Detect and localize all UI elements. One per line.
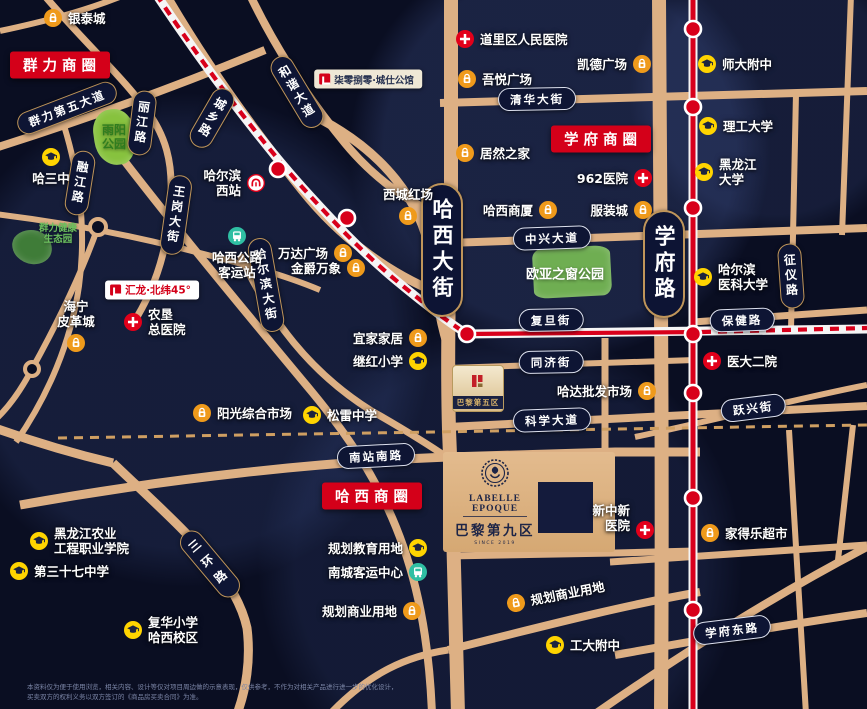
poi-吾悦广场: 吾悦广场 [458,70,476,88]
graduation-cap-icon [30,532,48,550]
street-pill: 中兴大道 [513,225,592,251]
shopping-bag-icon [701,524,719,542]
poi-marker [409,329,427,347]
project-site-block: LABELLE EPOQUE 巴黎第九区 SINCE 2019 [443,452,615,552]
street-pill: 同济街 [519,350,584,374]
street-pill: 南站南路 [336,442,415,469]
poi-道里区人民医院: 道里区人民医院 [456,30,474,48]
poi-marker [703,352,721,370]
poi-规划商业用地: 规划商业用地 [403,602,421,620]
shopping-bag-icon [505,592,526,613]
street-pill: 保健路 [709,307,774,332]
poi-label: 哈达批发市场 [557,384,632,399]
poi-银泰城: 银泰城 [44,9,62,27]
poi-西城红场: 西城红场 [399,207,417,225]
poi-marker [409,352,427,370]
project-since: SINCE 2019 [449,541,541,546]
poi-label: 继红小学 [353,354,403,369]
qilingbaling-text: 柒零捌零·城仕公馆 [334,72,414,86]
poi-家得乐超市: 家得乐超市 [701,524,719,542]
poi-黑龙江农业工程职业学院: 黑龙江农业工程职业学院 [30,532,48,550]
graduation-cap-icon [546,636,564,654]
park-label: 欧亚之窗公园 [526,269,604,284]
hospital-cross-icon [703,352,721,370]
station-dot [459,326,475,342]
poi-居然之家: 居然之家 [456,144,474,162]
poi-label: 家得乐超市 [725,526,788,541]
poi-marker [539,201,557,219]
station-dot [339,210,355,226]
poi-农垦总医院: 农垦总医院 [124,313,142,331]
poi-label: 黑龙江农业工程职业学院 [54,526,129,556]
road [842,0,851,235]
shopping-bag-icon [456,144,474,162]
shopping-bag-icon [67,334,85,352]
real-estate-location-map: LABELLE EPOQUE 巴黎第九区 SINCE 2019 巴黎第五区 柒零… [0,0,867,709]
poi-工大附中: 工大附中 [546,636,564,654]
poi-label: 哈尔滨医科大学 [718,262,768,292]
poi-marker [399,207,417,225]
poi-label: 规划商业用地 [322,604,397,619]
poi-marker [44,9,62,27]
poi-marker [409,563,427,581]
poi-marker [633,55,651,73]
poi-松雷中学: 松雷中学 [303,406,321,424]
huilong-logo-icon [110,285,121,296]
poi-南城客运中心: 南城客运中心 [409,563,427,581]
hospital-cross-icon [124,313,142,331]
poi-label: 复华小学哈西校区 [148,615,198,645]
poi-label: 银泰城 [68,11,106,26]
poi-第三十七中学: 第三十七中学 [10,562,28,580]
huilong-brand-label: 汇龙·北纬45° [105,281,199,300]
shopping-bag-icon [347,259,365,277]
poi-marker [458,70,476,88]
road [789,430,806,709]
poi-label: 黑龙江大学 [719,157,757,187]
poi-marker [67,334,85,352]
poi-宜家家居: 宜家家居 [409,329,427,347]
poi-label: 962医院 [577,171,628,186]
poi-海宁皮革城: 海宁皮革城 [67,334,85,352]
bus-icon [409,563,427,581]
major-street-pill: 学府路 [643,210,685,318]
poi-marker [695,163,713,181]
station-dot [685,326,701,342]
qilingbaling-logo-icon [319,74,330,85]
poi-哈尔滨医科大学: 哈尔滨医科大学 [694,268,712,286]
major-street-pill: 哈西大街 [421,183,463,317]
graduation-cap-icon [409,352,427,370]
poi-继红小学: 继红小学 [409,352,427,370]
street-pill: 复旦街 [519,308,584,332]
poi-marker [247,174,265,192]
poi-黑龙江大学: 黑龙江大学 [695,163,713,181]
poi-哈尔滨西站: 哈尔滨西站 [247,174,265,192]
poi-金爵万象: 金爵万象 [347,259,365,277]
poi-962医院: 962医院 [634,169,652,187]
project-emblem-icon [480,458,510,488]
graduation-cap-icon [409,539,427,557]
station-dot [685,200,701,216]
shopping-bag-icon [634,201,652,219]
paris5-emblem-icon [453,366,503,396]
poi-marker [638,382,656,400]
poi-label: 哈西公路客运站 [212,250,262,280]
poi-label: 凯德广场 [577,57,627,72]
poi-marker [124,621,142,639]
poi-marker [546,636,564,654]
poi-label: 理工大学 [723,119,773,134]
paris-5th-district-logo: 巴黎第五区 [452,365,504,412]
poi-marker [634,201,652,219]
poi-label: 宜家家居 [353,331,403,346]
poi-marker [636,521,654,539]
poi-label: 松雷中学 [327,408,377,423]
poi-理工大学: 理工大学 [699,117,717,135]
poi-规划教育用地: 规划教育用地 [409,539,427,557]
railway-line [467,332,702,334]
station-dot [270,161,286,177]
poi-label: 阳光综合市场 [217,406,292,421]
metro-logo-icon [247,174,265,192]
poi-哈西公路客运站: 哈西公路客运站 [228,227,246,245]
shopping-bag-icon [539,201,557,219]
poi-marker [193,404,211,422]
road [838,425,853,560]
poi-label: 服装城 [590,203,628,218]
project-inner-block [538,482,593,533]
poi-marker [699,117,717,135]
poi-师大附中: 师大附中 [698,55,716,73]
paris5-label: 巴黎第五区 [453,396,503,409]
poi-label: 医大二院 [727,354,777,369]
poi-marker [303,406,321,424]
shopping-bag-icon [638,382,656,400]
street-pill: 征仪路 [777,243,805,310]
station-dot [685,490,701,506]
shopping-bag-icon [633,55,651,73]
project-logo: LABELLE EPOQUE 巴黎第九区 SINCE 2019 [449,458,541,548]
station-dot [685,21,701,37]
poi-label: 工大附中 [570,638,620,653]
poi-规划商业用地: 规划商业用地 [505,592,526,613]
poi-marker [10,562,28,580]
poi-凯德广场: 凯德广场 [633,55,651,73]
poi-哈三中: 哈三中 [42,148,60,166]
poi-label: 道里区人民医院 [480,32,568,47]
shopping-bag-icon [403,602,421,620]
poi-marker [634,169,652,187]
poi-label: 金爵万象 [291,261,341,276]
poi-marker [694,268,712,286]
station-dot [685,385,701,401]
road [0,428,113,463]
poi-marker [409,539,427,557]
graduation-cap-icon [10,562,28,580]
poi-marker [228,227,246,245]
poi-label: 第三十七中学 [34,564,109,579]
poi-label: 哈尔滨西站 [203,168,241,198]
graduation-cap-icon [698,55,716,73]
poi-marker [698,55,716,73]
poi-label: 海宁皮革城 [57,299,95,329]
bus-icon [228,227,246,245]
poi-label: 南城客运中心 [328,565,403,580]
poi-label: 万达广场 [278,246,328,261]
poi-label: 新中新医院 [592,503,630,533]
shopping-bag-icon [458,70,476,88]
huilong-text: 汇龙·北纬45° [125,283,191,298]
shopping-bag-icon [409,329,427,347]
poi-哈西商厦: 哈西商厦 [539,201,557,219]
hospital-cross-icon [636,521,654,539]
qilingbaling-brand-label: 柒零捌零·城仕公馆 [314,70,422,89]
graduation-cap-icon [124,621,142,639]
poi-label: 哈三中 [32,171,70,186]
poi-服装城: 服装城 [634,201,652,219]
street-pill: 科学大道 [513,407,592,433]
poi-marker [456,144,474,162]
poi-marker [701,524,719,542]
poi-label: 居然之家 [480,146,530,161]
shopping-bag-icon [44,9,62,27]
roundabout [90,219,106,235]
disclaimer: 本资料仅为便于使用浏览，相关内容、设计等仅对项目周边做的示意表现，仅供参考，不作… [27,682,747,702]
district-banner-qunli: 群力商圈 [10,52,110,79]
station-dot [685,602,701,618]
shopping-bag-icon [399,207,417,225]
street-pill: 清华大街 [498,87,576,111]
graduation-cap-icon [42,148,60,166]
poi-label: 规划教育用地 [328,541,403,556]
district-banner-haxi: 哈西商圈 [322,483,422,510]
poi-哈达批发市场: 哈达批发市场 [638,382,656,400]
poi-marker [124,313,142,331]
poi-label: 哈西商厦 [483,203,533,218]
poi-新中新医院: 新中新医院 [636,521,654,539]
poi-marker [42,148,60,166]
park-label: 群力健康生态园 [39,224,77,246]
poi-label: 西城红场 [383,187,433,202]
park-label: 雨阳公园 [102,124,126,152]
district-banner-xuefu: 学府商圈 [551,126,651,153]
poi-marker [456,30,474,48]
shopping-bag-icon [193,404,211,422]
poi-label: 吾悦广场 [482,72,532,87]
roundabout [25,362,39,376]
hospital-cross-icon [456,30,474,48]
project-name-cn: 巴黎第九区 [449,519,541,539]
poi-marker [30,532,48,550]
project-name-en: LABELLE EPOQUE [449,494,541,514]
hospital-cross-icon [634,169,652,187]
graduation-cap-icon [695,163,713,181]
poi-医大二院: 医大二院 [703,352,721,370]
poi-marker [347,259,365,277]
poi-label: 师大附中 [722,57,772,72]
graduation-cap-icon [303,406,321,424]
station-dot [685,99,701,115]
graduation-cap-icon [699,117,717,135]
poi-marker [505,592,526,613]
project-divider [463,516,527,517]
poi-label: 农垦总医院 [148,307,186,337]
poi-阳光综合市场: 阳光综合市场 [193,404,211,422]
poi-复华小学哈西校区: 复华小学哈西校区 [124,621,142,639]
graduation-cap-icon [694,268,712,286]
poi-marker [403,602,421,620]
